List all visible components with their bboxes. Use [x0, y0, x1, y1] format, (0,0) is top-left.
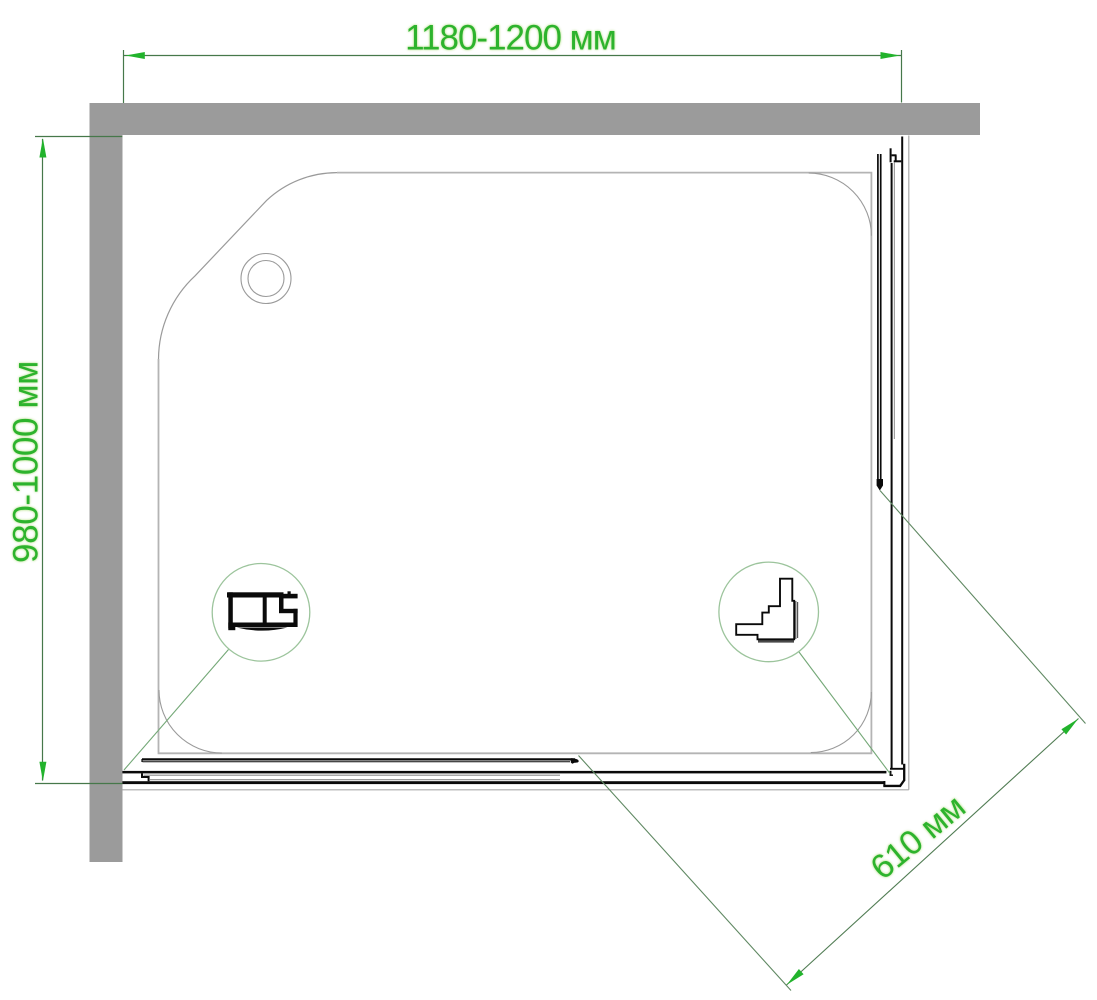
- svg-text:980-1000 мм: 980-1000 мм: [7, 361, 46, 563]
- svg-text:1180-1200 мм: 1180-1200 мм: [405, 18, 616, 57]
